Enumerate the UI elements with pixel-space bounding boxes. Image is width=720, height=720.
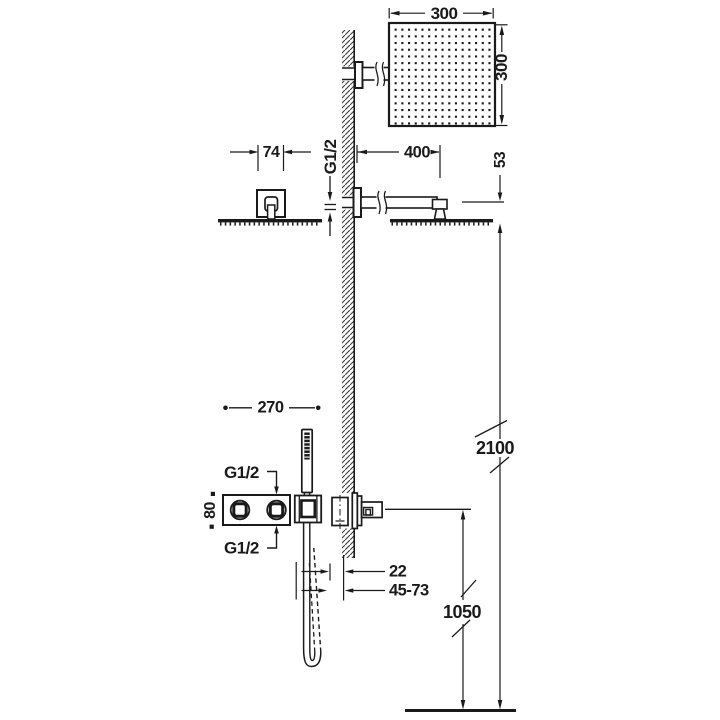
dim-outlet-range-label: 45-73 [389, 582, 429, 600]
dim-outlet-offset-label: 22 [389, 563, 407, 581]
nozzle-ticks-left [220, 222, 318, 225]
head-edge-front-view [218, 219, 322, 226]
dim-head-drop-label: 53 [492, 151, 509, 168]
arm-thread-marker: G1/2 [321, 140, 340, 236]
dim-arm-length-label: 400 [404, 144, 430, 162]
wall-outlet [332, 493, 382, 529]
valve-thread-top-marker: G1/2 [224, 463, 279, 495]
dim-head-height-label: 300 [492, 54, 511, 81]
shower-arm-side-view [341, 188, 447, 219]
dim-outlet-height-label: 1050 [443, 602, 482, 622]
dim-valve-to-holder-label: 270 [257, 399, 283, 417]
pipe-break-icon [375, 62, 385, 86]
valve-thread-top-label: G1/2 [224, 463, 259, 482]
dim-head-width: 300 [389, 4, 493, 23]
valve-thread-bottom-label: G1/2 [224, 539, 259, 558]
spray-nozzle-grid [395, 29, 491, 125]
dim-valve-plate-height: 80 [202, 492, 219, 529]
rain-head-front-view [341, 23, 495, 126]
thermostatic-valve-plate [223, 495, 290, 525]
dim-valve-plate-height-label: 80 [202, 502, 219, 519]
pipe-break-icon [377, 191, 387, 214]
dim-flange-width-label: 74 [263, 144, 280, 161]
valve-knob-left [231, 501, 250, 520]
valve-thread-bottom-marker: G1/2 [224, 526, 279, 558]
dim-head-drop: 53 [462, 151, 509, 202]
hand-shower-spray-face [304, 436, 309, 458]
dim-total-height: 2100 [475, 224, 515, 710]
head-edge-side-view [390, 219, 493, 226]
dim-outlet-range: 45-73 [302, 582, 430, 600]
dim-outlet-height: 1050 [385, 509, 482, 709]
shower-installation-diagram: 300 300 74 G1/2 [0, 0, 720, 720]
dim-head-width-label: 300 [431, 4, 458, 23]
hand-shower [302, 430, 312, 502]
valve-knob-right [267, 501, 286, 520]
arm-flange-front-view [257, 190, 285, 219]
dim-arm-length: 400 [357, 144, 440, 179]
nozzle-ticks-right [392, 222, 490, 225]
shower-hose [304, 523, 321, 667]
diagram-svg: 300 300 74 G1/2 [0, 0, 720, 720]
dim-flange-width: 74 [230, 144, 311, 171]
dim-total-height-label: 2100 [476, 438, 515, 458]
hand-shower-holder [295, 496, 321, 523]
dim-valve-to-holder: 270 [223, 399, 320, 417]
arm-thread-label: G1/2 [321, 140, 340, 175]
wall-section [342, 30, 354, 558]
